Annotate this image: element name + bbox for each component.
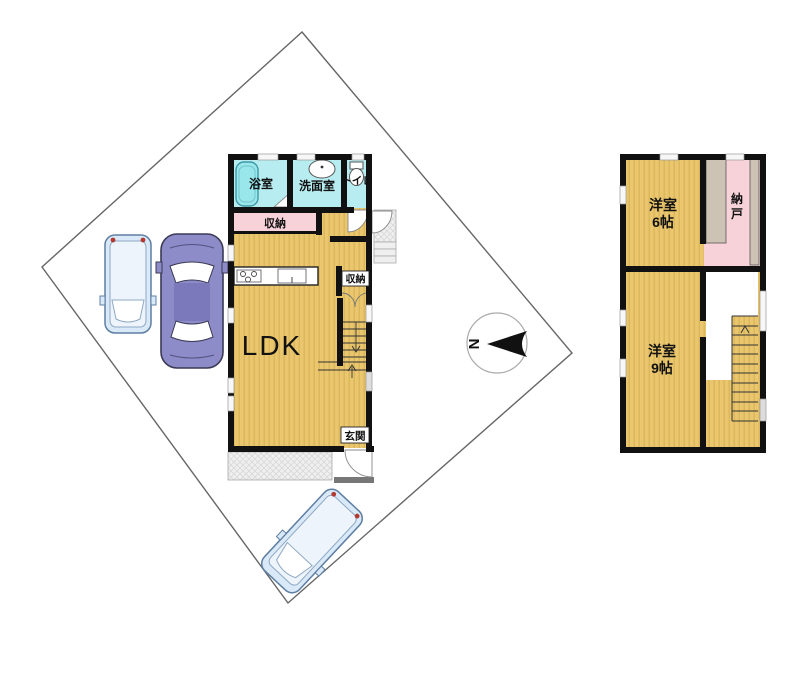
- roof: [174, 283, 210, 321]
- room-label-ldk: LDK: [242, 330, 302, 361]
- room-label-closet-top: 収納: [264, 216, 286, 230]
- floorplan-canvas: N: [0, 0, 800, 691]
- room-label-bath: 浴室: [249, 176, 273, 191]
- room-label-9jo-size: 9帖: [651, 360, 673, 376]
- entrance-door-arc: [345, 450, 372, 477]
- car-sedan: [156, 234, 228, 368]
- stair-landing: [706, 272, 758, 316]
- kitchen-counter: [234, 267, 318, 285]
- stove: [237, 270, 261, 282]
- room-label-6jo-name: 洋室: [649, 197, 677, 213]
- compass: N: [466, 313, 527, 373]
- storage-shelf-right: [750, 159, 759, 265]
- room-label-storage-bottom-char: 戸: [731, 207, 743, 221]
- room-label-entrance: 玄関: [345, 430, 366, 443]
- windshield: [112, 300, 144, 322]
- room-label-washroom: 洗面室: [299, 178, 335, 193]
- floor2-plan: 洋室 6帖 納 戸 洋室 9帖: [620, 154, 766, 453]
- mirror-right: [222, 262, 228, 273]
- car-van-left: [100, 235, 156, 333]
- room-label-closet-mid: 収納: [346, 273, 366, 286]
- room-label-toilet: トイレ: [341, 175, 373, 187]
- windshield: [170, 262, 214, 283]
- north-label: N: [466, 339, 483, 350]
- room-label-6jo-size: 6帖: [652, 214, 674, 230]
- mirror-left: [156, 262, 162, 273]
- mirror-left: [100, 296, 105, 305]
- storage-shelf-left: [706, 159, 726, 243]
- mirror-right: [151, 296, 156, 305]
- stair-void: [706, 316, 732, 380]
- porch-step-bar: [334, 477, 374, 483]
- floorplan-page: N: [0, 0, 800, 691]
- rear-glass: [171, 321, 213, 342]
- porch-bottom: [228, 452, 332, 480]
- toilet-tank: [350, 162, 363, 169]
- room-label-9jo-name: 洋室: [648, 343, 676, 359]
- floor1-plan: 浴室 洗面室 トイレ 収納 LDK 収納 玄関: [228, 154, 396, 483]
- room-label-storage-top-char: 納: [731, 191, 743, 206]
- washbasin: [309, 160, 335, 178]
